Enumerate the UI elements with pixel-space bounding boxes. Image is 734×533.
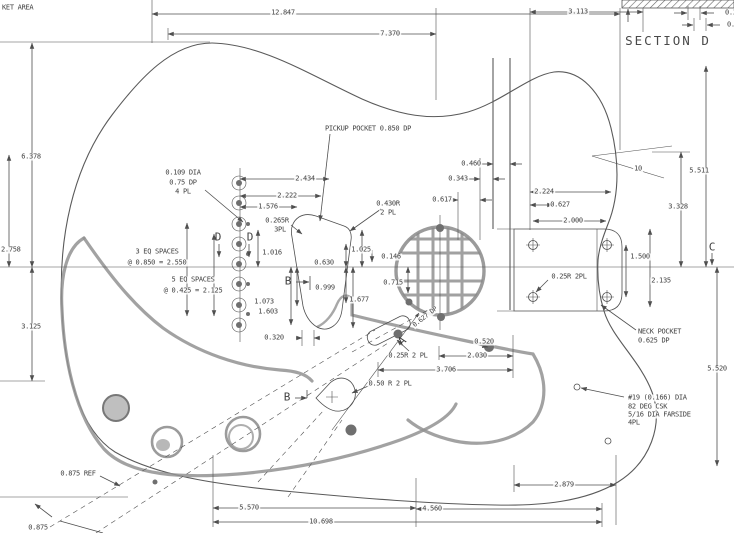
section-d-view <box>622 0 734 31</box>
string-ferrules <box>232 168 250 342</box>
pickup-pocket <box>291 215 351 329</box>
neck-pocket <box>514 229 622 444</box>
neck-screw-holes <box>526 238 614 304</box>
control-holes <box>103 395 260 485</box>
drawing-canvas <box>0 0 734 533</box>
leader-lines <box>35 9 720 533</box>
blueprint-page: KET AREA12.8473.1137.3700.30.3SECTION D6… <box>0 0 734 533</box>
construction-lines <box>50 310 428 533</box>
guitar-body-outline <box>61 43 656 505</box>
pickguard-outline <box>62 238 544 476</box>
section-a-line <box>332 313 419 430</box>
